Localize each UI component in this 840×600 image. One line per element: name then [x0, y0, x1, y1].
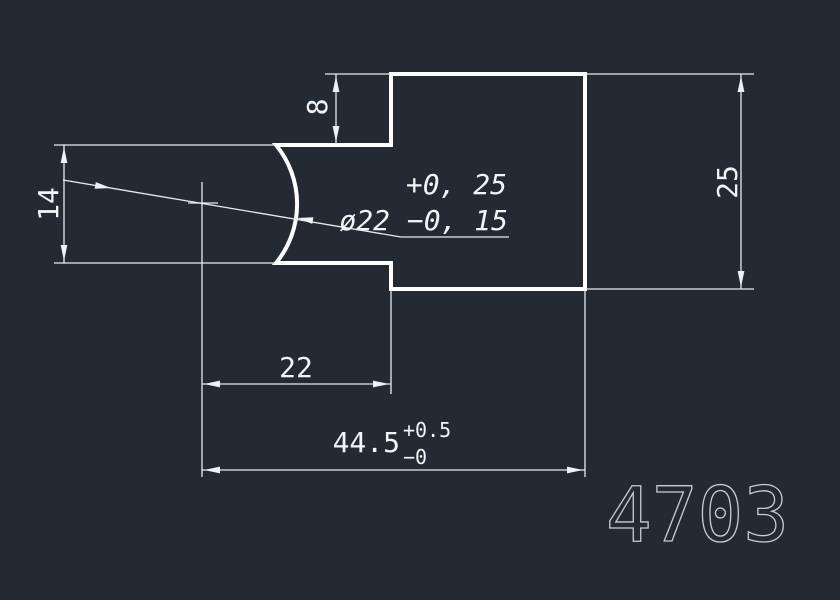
dim-44-5-text: 44.5: [333, 426, 400, 459]
dim-44-5-tolerance-plus: +0.5: [403, 418, 451, 442]
dim-14-text: 14: [32, 187, 65, 221]
dim-44-5-tolerance-minus: −0: [403, 445, 427, 469]
cad-drawing-canvas: 8 14 25 22 44.5 +0.5 −0 +0, 25 ø22 −0, 1…: [0, 0, 840, 600]
dim-8-text: 8: [301, 99, 334, 116]
diameter-value-text: ø22 −0, 15: [339, 204, 508, 237]
dim-22-text: 22: [279, 351, 313, 384]
diameter-tolerance-plus-text: +0, 25: [406, 168, 507, 201]
part-number-text: 4703: [606, 470, 789, 559]
dim-25-text: 25: [711, 165, 744, 199]
